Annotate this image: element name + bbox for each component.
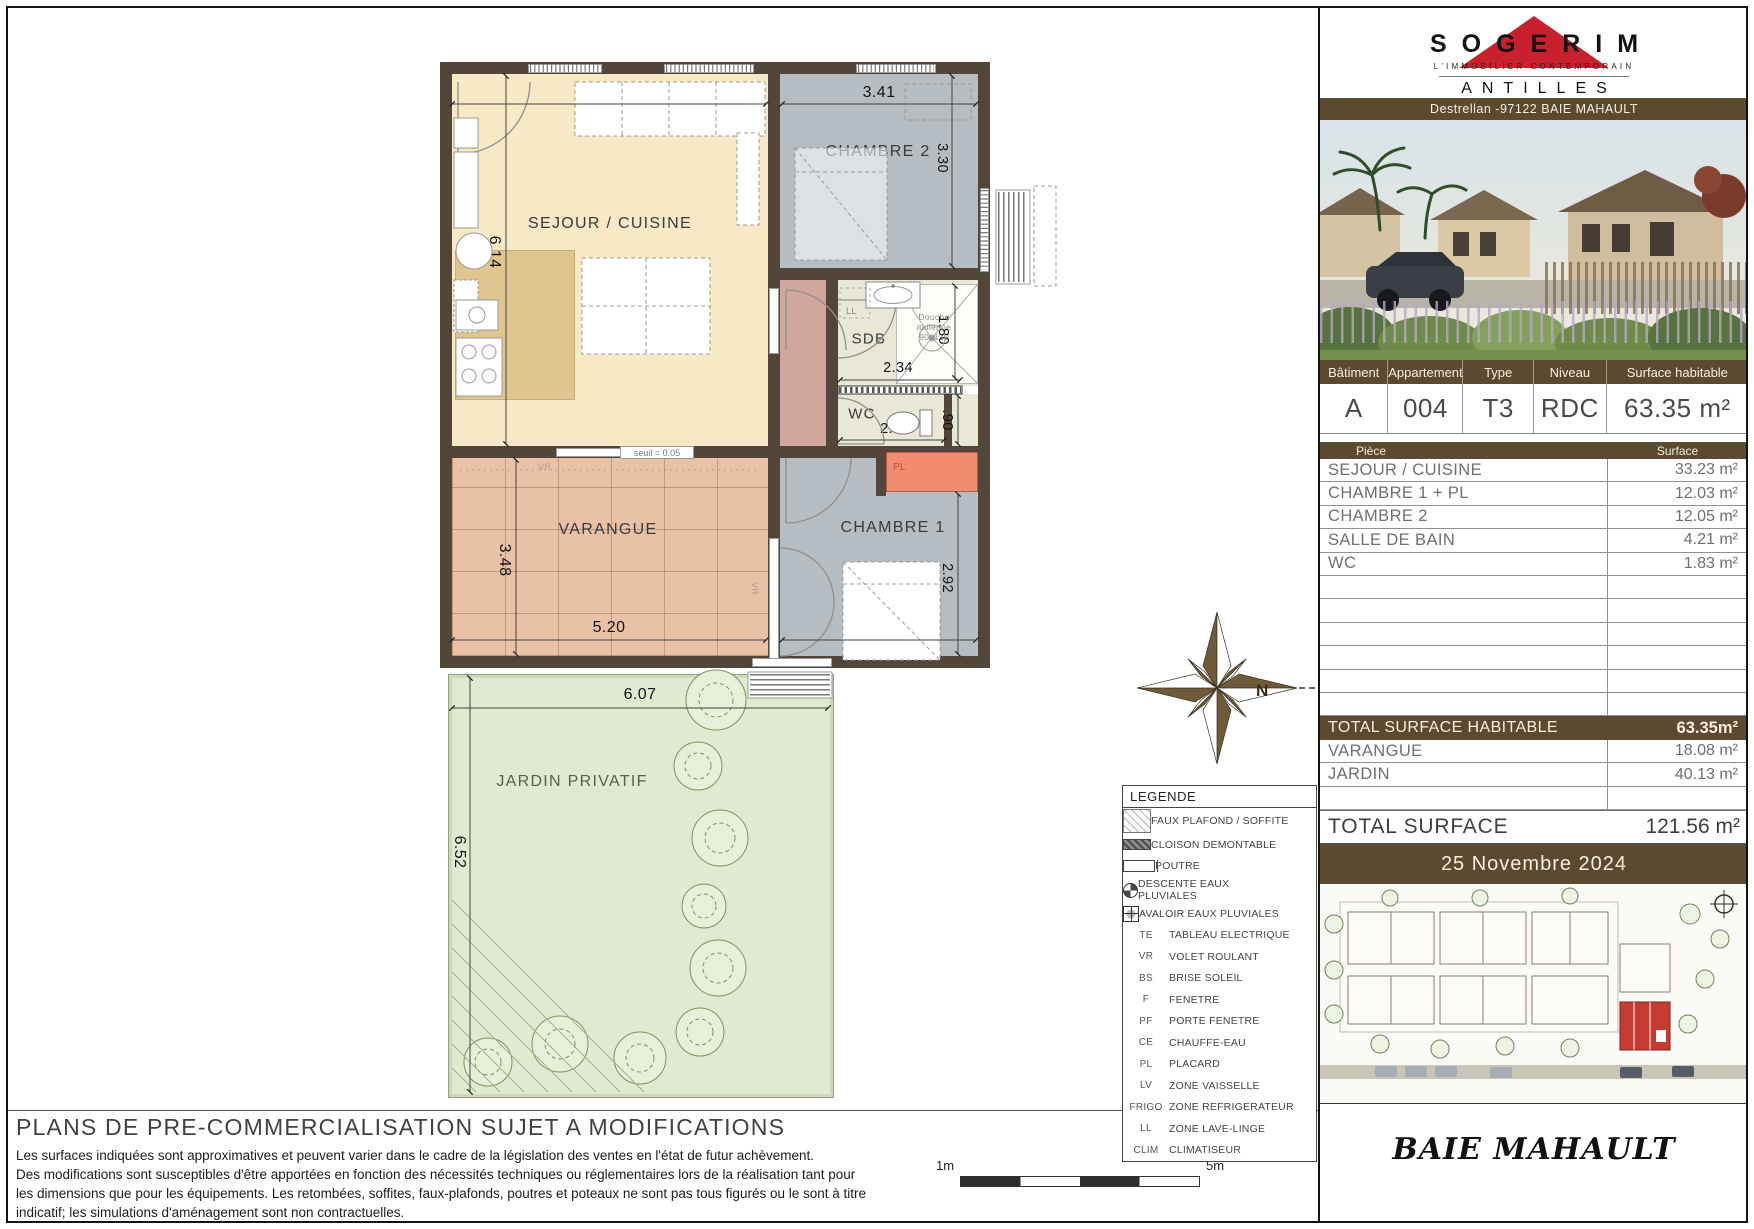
dim-chambre2-width: 3.41 xyxy=(863,84,896,102)
cloison-demontable xyxy=(838,386,962,394)
room-name: SALLE DE BAIN xyxy=(1320,531,1607,550)
disclaimer-line: Des modifications sont susceptibles d'êt… xyxy=(16,1165,896,1184)
address-bar: Destrellan -97122 BAIE MAHAULT xyxy=(1320,98,1748,120)
legend-item-label: PLACARD xyxy=(1169,1058,1311,1070)
legend-item-icon: TE xyxy=(1123,930,1169,941)
room-surface: 12.05 m² xyxy=(1607,506,1748,528)
label-douche: Douche italienne 90x120 xyxy=(908,312,960,343)
logo-region: ANTILLES xyxy=(1320,80,1748,98)
total-habitable-value: 63.35m² xyxy=(1597,719,1748,738)
legend-item-icon xyxy=(1123,906,1139,922)
dim-wc-height: .90 xyxy=(939,409,955,430)
seuil-chip: seuil = 0.05 xyxy=(620,446,694,459)
rooms-table-row xyxy=(1320,576,1748,599)
legend-item-label: DESCENTE EAUX PLUVIALES xyxy=(1138,878,1280,902)
legend-item: CLOISON DEMONTABLE xyxy=(1123,834,1316,856)
rooms-table-row: SALLE DE BAIN 4.21 m² xyxy=(1320,529,1748,552)
legend-item-label: CLIMATISEUR xyxy=(1169,1144,1311,1156)
legend-item: TE TABLEAU ELECTRIQUE xyxy=(1123,925,1316,947)
legend-item-label: VOLET ROULANT xyxy=(1169,951,1311,963)
dim-chambre1-height: 2.92 xyxy=(939,563,955,593)
room-surface xyxy=(1607,646,1748,668)
summary-header-surface: Surface habitable xyxy=(1607,360,1748,384)
legend-item-icon: VR xyxy=(1123,951,1169,962)
legend-item: PL PLACARD xyxy=(1123,1054,1316,1076)
disclaimer-title: PLANS DE PRE-COMMERCIALISATION SUJET A M… xyxy=(16,1114,785,1141)
legend-item: DESCENTE EAUX PLUVIALES xyxy=(1123,877,1316,903)
summary-header-type: Type xyxy=(1463,360,1534,384)
dim-varangue-width: 5.20 xyxy=(593,619,626,637)
legend-item: PF PORTE FENETRE xyxy=(1123,1011,1316,1033)
legend-item-icon xyxy=(1123,839,1151,850)
total-surface-row: TOTAL SURFACE 121.56 m² xyxy=(1320,810,1748,844)
compass-icon xyxy=(1137,612,1320,764)
dim-sdb-height: 1.80 xyxy=(935,315,951,345)
annex-surface: 40.13 m² xyxy=(1607,763,1748,785)
legend-item: F FENETRE xyxy=(1123,989,1316,1011)
label-ll: LL xyxy=(846,306,857,316)
legend-item-icon: LL xyxy=(1123,1123,1169,1134)
legend-item-icon: PL xyxy=(1123,1059,1169,1070)
window-chambre1-varangue xyxy=(769,538,779,664)
rooms-table-row xyxy=(1320,599,1748,622)
legend-items: FAUX PLAFOND / SOFFITE CLOISON DEMONTABL… xyxy=(1123,808,1316,1161)
dim-chambre1-width: 3.41 xyxy=(863,619,896,637)
room-surface: 12.03 m² xyxy=(1607,482,1748,504)
disclaimer-line: Les surfaces indiquées sont approximativ… xyxy=(16,1146,896,1165)
scale-bar xyxy=(960,1176,1200,1187)
summary-value-surface: 63.35 m² xyxy=(1607,384,1748,433)
legend-item-icon: BS xyxy=(1123,973,1169,984)
legend-item-label: PORTE FENETRE xyxy=(1169,1015,1311,1027)
room-surface: 4.21 m² xyxy=(1607,529,1748,551)
legend-item-label: ZONE REFRIGERATEUR xyxy=(1169,1101,1311,1113)
legend-item: BS BRISE SOLEIL xyxy=(1123,968,1316,990)
room-name: SEJOUR / CUISINE xyxy=(1320,461,1607,480)
label-pl-left: PL xyxy=(462,182,472,194)
label-jardin: JARDIN PRIVATIF xyxy=(496,773,647,791)
annex-surface xyxy=(1607,787,1748,809)
rooms-table-row xyxy=(1320,670,1748,693)
info-sidebar: SOGERIM L'IMMOBILIER CONTEMPORAIN ANTILL… xyxy=(1320,6,1748,1223)
logo-divider xyxy=(1439,76,1629,77)
legend-item-icon xyxy=(1123,860,1155,872)
legend-item: VR VOLET ROULANT xyxy=(1123,946,1316,968)
dim-varangue-height: 3.48 xyxy=(495,544,513,577)
label-placard: PL xyxy=(893,462,906,473)
summary-header-niveau: Niveau xyxy=(1534,360,1607,384)
legend-item-label: AVALOIR EAUX PLUVIALES xyxy=(1139,908,1281,920)
summary-header-appartement: Appartement xyxy=(1388,360,1463,384)
label-sdb: SDB xyxy=(852,331,887,348)
room-surface: 33.23 m² xyxy=(1607,459,1748,481)
legend-item: FRIGO ZONE REFRIGERATEUR xyxy=(1123,1097,1316,1119)
summary-value-niveau: RDC xyxy=(1534,384,1607,433)
rooms-table-row xyxy=(1320,693,1748,716)
wall-outer-right xyxy=(978,62,990,668)
sidebar-divider xyxy=(1318,6,1320,1223)
label-frigo: FRIGO xyxy=(462,292,472,322)
logo-block: SOGERIM L'IMMOBILIER CONTEMPORAIN ANTILL… xyxy=(1320,6,1748,98)
legend-item: AVALOIR EAUX PLUVIALES xyxy=(1123,903,1316,925)
legend-title: LEGENDE xyxy=(1123,786,1316,808)
annex-rows: VARANGUE 18.08 m² JARDIN 40.13 m² xyxy=(1320,740,1748,810)
rooms-table-row: CHAMBRE 2 12.05 m² xyxy=(1320,506,1748,529)
date-bar: 25 Novembre 2024 xyxy=(1320,844,1748,884)
annex-row xyxy=(1320,787,1748,810)
legend-item-label: ZONE VAISSELLE xyxy=(1169,1080,1311,1092)
disclaimer-line: indicatif; les simulations d'aménagement… xyxy=(16,1203,896,1222)
window-chambre2-top xyxy=(856,64,936,73)
kitchen-counter xyxy=(455,250,575,400)
room-name: WC xyxy=(1320,554,1607,573)
legend-item-label: BRISE SOLEIL xyxy=(1169,972,1311,984)
dim-sdb-width: 2.34 xyxy=(883,360,913,376)
label-chambre1: CHAMBRE 1 xyxy=(840,519,945,537)
legend-item-icon xyxy=(1123,809,1151,833)
summary-values-row: A 004 T3 RDC 63.35 m² xyxy=(1320,384,1748,434)
legend-item-icon: CE xyxy=(1123,1037,1169,1048)
site-highlight-unit xyxy=(1620,1002,1670,1050)
room-surface xyxy=(1607,693,1748,715)
total-habitable-row: TOTAL SURFACE HABITABLE 63.35m² xyxy=(1320,716,1748,740)
summary-value-type: T3 xyxy=(1463,384,1534,433)
rooms-table-row: CHAMBRE 1 + PL 12.03 m² xyxy=(1320,482,1748,505)
rooms-table-row xyxy=(1320,623,1748,646)
window-sejour-top-2 xyxy=(664,64,754,73)
annex-row: VARANGUE 18.08 m² xyxy=(1320,740,1748,763)
rooms-table-row: SEJOUR / CUISINE 33.23 m² xyxy=(1320,459,1748,482)
room-surface xyxy=(1607,623,1748,645)
window-chambre1-bottom xyxy=(752,658,832,667)
room-surface xyxy=(1607,576,1748,598)
annex-name: JARDIN xyxy=(1320,765,1607,784)
compass-north-label: N xyxy=(1256,681,1268,700)
legend-item: LL ZONE LAVE-LINGE xyxy=(1123,1118,1316,1140)
rooms-col-surface: Surface xyxy=(1607,444,1748,458)
wall-outer-left xyxy=(440,62,452,668)
window-chambre2-right xyxy=(980,188,989,272)
legend-item-label: CLOISON DEMONTABLE xyxy=(1151,839,1293,851)
room-surface xyxy=(1607,599,1748,621)
summary-value-appartement: 004 xyxy=(1388,384,1463,433)
label-sejour: SEJOUR / CUISINE xyxy=(528,215,692,233)
rooms-table-row xyxy=(1320,646,1748,669)
legend-item-icon: F xyxy=(1123,994,1169,1005)
legend-item-icon: CLIM xyxy=(1123,1145,1169,1156)
label-vr: VR xyxy=(538,462,551,472)
summary-header-row: Bâtiment Appartement Type Niveau Surface… xyxy=(1320,360,1748,384)
summary-header-batiment: Bâtiment xyxy=(1320,360,1388,384)
rooms-table-body: SEJOUR / CUISINE 33.23 m² CHAMBRE 1 + PL… xyxy=(1320,459,1748,716)
disclaimer-line: les dimensions que pour les équipements.… xyxy=(16,1184,896,1203)
legend-item-label: TABLEAU ELECTRIQUE xyxy=(1169,929,1311,941)
wall-placard-side xyxy=(876,452,886,496)
wall-sdb-west xyxy=(826,280,838,446)
disclaimer-body: Les surfaces indiquées sont approximativ… xyxy=(16,1146,896,1223)
jardin-privatif xyxy=(448,674,834,1098)
total-surface-value: 121.56 m² xyxy=(1599,815,1748,839)
room-name: CHAMBRE 1 + PL xyxy=(1320,484,1607,503)
rooms-col-piece: Pièce xyxy=(1320,444,1607,458)
dim-sejour-width: 5.19 xyxy=(593,84,626,102)
site-plan xyxy=(1320,884,1748,1104)
window-sejour-top-1 xyxy=(528,64,602,73)
summary-value-batiment: A xyxy=(1320,384,1388,433)
dim-jardin-width: 6.07 xyxy=(624,686,657,704)
legend-item: FAUX PLAFOND / SOFFITE xyxy=(1123,808,1316,834)
legend-item-label: FENETRE xyxy=(1169,994,1311,1006)
room-surface: 1.83 m² xyxy=(1607,553,1748,575)
legend-box: LEGENDE FAUX PLAFOND / SOFFITE CLOISON D… xyxy=(1122,785,1317,1162)
wall-sejour-east xyxy=(768,62,780,458)
legend-item-icon xyxy=(1123,883,1138,898)
legend-item: CLIM CLIMATISEUR xyxy=(1123,1140,1316,1162)
dim-wc-width: 2.04 xyxy=(880,421,910,437)
label-seuil: seuil = 0.05 xyxy=(634,448,680,458)
room-name: CHAMBRE 2 xyxy=(1320,507,1607,526)
door-hall-sejour xyxy=(769,288,779,354)
label-varangue: VARANGUE xyxy=(558,521,657,539)
legend-item-label: FAUX PLAFOND / SOFFITE xyxy=(1151,815,1293,827)
legend-item-icon: LV xyxy=(1123,1080,1169,1091)
legend-item-icon: FRIGO xyxy=(1123,1102,1169,1113)
legend-item-label: ZONE LAVE-LINGE xyxy=(1169,1123,1311,1135)
annex-surface: 18.08 m² xyxy=(1607,740,1748,762)
annex-name: VARANGUE xyxy=(1320,742,1607,761)
legend-item-icon: PF xyxy=(1123,1016,1169,1027)
legend-item: LV ZONE VAISSELLE xyxy=(1123,1075,1316,1097)
dim-sejour-height: 6.14 xyxy=(485,236,503,269)
label-ecs: ECS xyxy=(468,243,478,262)
hall-entry xyxy=(780,280,826,446)
label-vr2: VR xyxy=(750,582,760,595)
rooms-table-row: WC 1.83 m² xyxy=(1320,553,1748,576)
legend-item-label: CHAUFFE-EAU xyxy=(1169,1037,1311,1049)
label-te: TE xyxy=(462,124,472,136)
logo-brand: SOGERIM xyxy=(1320,30,1748,59)
legend-item: POUTRE xyxy=(1123,856,1316,878)
room-surface xyxy=(1607,670,1748,692)
wall-outer-bottom xyxy=(440,656,990,668)
logo-tagline: L'IMMOBILIER CONTEMPORAIN xyxy=(1320,62,1748,71)
city-name: BAIE MAHAULT xyxy=(1320,1132,1748,1167)
total-habitable-label: TOTAL SURFACE HABITABLE xyxy=(1320,719,1597,737)
rooms-table-header: Pièce Surface xyxy=(1320,442,1748,459)
dim-jardin-height: 6.52 xyxy=(450,836,468,869)
wall-chambre2-south xyxy=(780,268,978,280)
label-wc: WC xyxy=(848,406,876,423)
project-photo xyxy=(1320,120,1748,360)
label-chambre2: CHAMBRE 2 xyxy=(825,143,930,161)
legend-item-label: POUTRE xyxy=(1155,860,1297,872)
legend-item: CE CHAUFFE-EAU xyxy=(1123,1032,1316,1054)
total-surface-label: TOTAL SURFACE xyxy=(1320,815,1599,839)
annex-row: JARDIN 40.13 m² xyxy=(1320,763,1748,786)
floor-plan-sheet: N SEJOUR / CUISINE CHAMBRE 2 SDB WC CHAM… xyxy=(0,0,1754,1229)
scale-label-1m: 1m xyxy=(936,1158,954,1173)
dim-chambre2-height: 3.30 xyxy=(934,143,950,173)
